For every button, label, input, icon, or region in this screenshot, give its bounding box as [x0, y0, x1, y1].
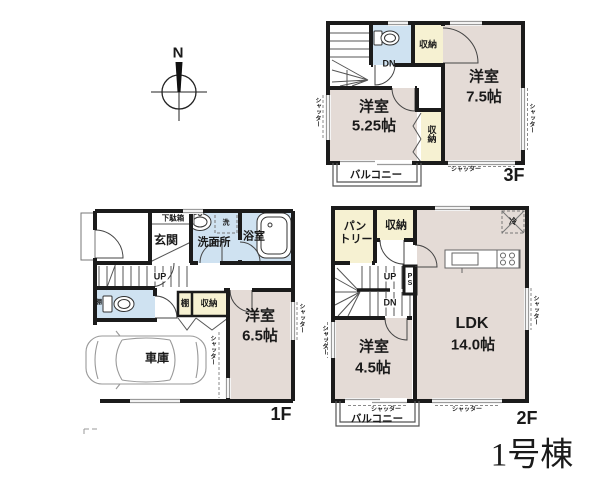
f1-room-size: 6.5帖 — [242, 329, 278, 344]
f2-fridge-label: 冷 — [509, 218, 517, 226]
f1-shoe-cabinet-label: 下駄箱 — [162, 214, 185, 222]
f3-shutter-bottom-label: シャッター — [451, 167, 481, 173]
f1-storage-label: 収納 — [200, 299, 217, 308]
f2-shutter-left-label: シャッター — [321, 325, 327, 355]
f3-toilet-icon — [374, 31, 399, 45]
f3-shutter-left-label: シャッター — [314, 97, 320, 127]
f1-shelf-label: 棚 — [181, 299, 190, 308]
f2-ldk-name: LDK — [456, 316, 489, 332]
f1-room-name: 洋室 — [245, 309, 275, 324]
f2-room-size: 4.5帖 — [355, 361, 391, 376]
f1-porch — [81, 213, 95, 260]
f1-shutter-right-label: シャッター — [298, 303, 304, 333]
f2-shutter-bottom-label: シャッター — [452, 407, 482, 413]
f3-room-a-name: 洋室 — [359, 100, 389, 115]
f1-floor-label: 1F — [270, 405, 291, 423]
f1-shutter-garage-label: シャッター — [209, 335, 215, 365]
f1-bathroom-label: 浴室 — [243, 232, 265, 243]
f2-pantry-label-line1: パン — [344, 222, 367, 233]
f2-dn-label: DN — [383, 299, 398, 308]
f3-room-b-name: 洋室 — [469, 70, 499, 85]
f1-up-label: UP — [153, 273, 168, 282]
f3-room-a-size: 5.25帖 — [352, 119, 396, 134]
f3-balcony-label: バルコニー — [350, 170, 402, 181]
compass-icon — [151, 62, 207, 121]
f2-up-label: UP — [383, 273, 398, 282]
f2-room-name: 洋室 — [359, 340, 389, 355]
f3-room-b-size: 7.5帖 — [466, 90, 502, 105]
f2-ps-label: PS — [407, 273, 414, 287]
f3-floor-label: 3F — [503, 166, 524, 184]
f1-laundry-label: 洗 — [223, 220, 230, 227]
f3-storage-label: 収納 — [419, 41, 437, 50]
f2-shutter-right-label: シャッター — [532, 295, 538, 325]
f2-pantry-label-line2: トリー — [340, 235, 373, 246]
f1-entrance-label: 玄関 — [154, 234, 178, 246]
f2-storage-label: 収納 — [385, 221, 407, 232]
f3-shutter-right-label: シャッター — [528, 103, 534, 133]
f1-toilet-shelf-label: 棚 — [96, 300, 102, 306]
f2-floor-label: 2F — [516, 409, 537, 427]
corner-ticks — [84, 429, 97, 434]
building-name-label: 1号棟 — [491, 440, 574, 473]
f3-storage-mid-label: 収納 — [427, 125, 436, 143]
floorplan-linework — [0, 0, 600, 482]
f3-dn-label: DN — [383, 60, 396, 69]
f2-ldk-size: 14.0帖 — [451, 338, 495, 353]
compass-north-label: N — [173, 46, 184, 61]
f2-balcony-label: バルコニー — [351, 414, 403, 425]
f1-garage-label: 車庫 — [145, 352, 169, 364]
floorplan: N 収納 DN 洋室 5.25帖 収納 洋室 7.5帖 バルコニー シャッター … — [0, 0, 600, 482]
f1-washroom-label: 洗面所 — [198, 238, 231, 249]
